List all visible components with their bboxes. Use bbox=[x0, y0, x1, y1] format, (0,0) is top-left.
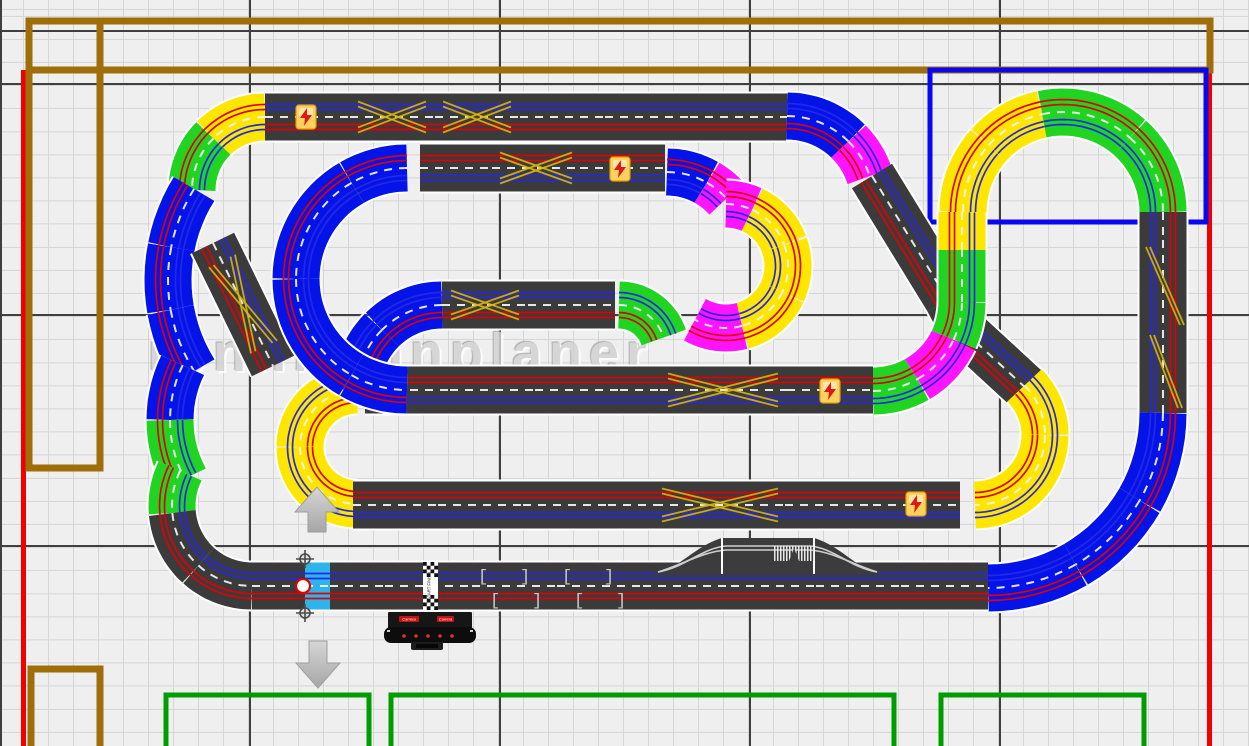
track-piece[interactable] bbox=[605, 105, 690, 130]
svg-text:Carrera: Carrera bbox=[439, 617, 453, 622]
grandstand-stripes bbox=[777, 546, 779, 561]
svg-text:Carrera: Carrera bbox=[402, 617, 416, 622]
track-piece[interactable] bbox=[620, 378, 660, 403]
svg-text:START FINISH: START FINISH bbox=[427, 572, 432, 600]
track-piece[interactable] bbox=[619, 293, 676, 342]
plan-canvas[interactable]: [][][][]START FINISHCarreraCarrera bbox=[0, 0, 1249, 746]
grandstand-stripes bbox=[798, 546, 800, 561]
border-clip-mark: [ bbox=[574, 592, 584, 611]
furniture-outline-brown-bottom-left[interactable] bbox=[31, 669, 100, 746]
track-piece[interactable] bbox=[353, 493, 438, 518]
wall-line-red-left[interactable] bbox=[21, 70, 26, 746]
table-outline-green-2[interactable] bbox=[391, 695, 894, 746]
plan-area: rennbahnplaner [][][][]START FINISHCarre… bbox=[0, 0, 1249, 746]
track-piece[interactable] bbox=[1069, 494, 1150, 575]
grandstand-stripes bbox=[810, 546, 812, 561]
track-piece[interactable] bbox=[330, 574, 385, 599]
grandstand-stripes bbox=[801, 546, 803, 561]
track-piece[interactable] bbox=[950, 212, 975, 250]
track-piece[interactable] bbox=[785, 493, 873, 518]
table-outline-green-3[interactable] bbox=[941, 695, 1144, 746]
track-piece[interactable] bbox=[689, 309, 746, 341]
track-piece[interactable] bbox=[608, 493, 655, 518]
table-outline-green-1[interactable] bbox=[166, 695, 369, 746]
move-down-arrow[interactable] bbox=[296, 641, 340, 688]
border-clip-mark: [ bbox=[490, 592, 500, 611]
track-piece[interactable] bbox=[1151, 330, 1176, 413]
led-dot bbox=[438, 634, 442, 638]
track-piece[interactable] bbox=[731, 574, 816, 599]
track-piece[interactable] bbox=[523, 493, 608, 518]
grandstand-stripes bbox=[780, 546, 782, 561]
track-piece[interactable] bbox=[643, 574, 731, 599]
track-piece[interactable] bbox=[950, 250, 975, 302]
track-piece[interactable] bbox=[159, 182, 205, 249]
bridge-overlay[interactable] bbox=[650, 538, 885, 574]
control-unit[interactable]: CarreraCarrera bbox=[384, 612, 476, 650]
track-piece[interactable] bbox=[747, 199, 796, 250]
track-piece[interactable] bbox=[535, 378, 620, 403]
selection-center-handle[interactable] bbox=[296, 579, 310, 593]
grandstand-stripes bbox=[783, 546, 785, 561]
track-piece[interactable] bbox=[911, 334, 965, 390]
border-clip-mark: [ bbox=[562, 568, 572, 587]
grandstand-stripes bbox=[804, 546, 806, 561]
power-connection-icon[interactable] bbox=[296, 105, 316, 129]
border-clip-mark: [ bbox=[478, 568, 488, 587]
track-piece[interactable] bbox=[975, 435, 1058, 518]
grandstand-stripes bbox=[807, 546, 809, 561]
border-clip-mark: ] bbox=[604, 568, 614, 587]
track-piece[interactable] bbox=[156, 245, 184, 312]
power-connection-icon[interactable] bbox=[820, 379, 840, 403]
furniture-outline-brown-left-tall[interactable] bbox=[29, 21, 100, 468]
track-piece[interactable] bbox=[158, 360, 194, 420]
start-finish-decal: START FINISH bbox=[423, 562, 438, 610]
track-piece[interactable] bbox=[284, 172, 358, 279]
furniture-outline-brown-top-band[interactable] bbox=[29, 21, 1210, 70]
led-dot bbox=[414, 634, 418, 638]
track-piece[interactable] bbox=[739, 287, 794, 338]
track-piece[interactable] bbox=[988, 554, 1082, 601]
track-piece[interactable] bbox=[345, 364, 407, 402]
track-piece[interactable] bbox=[528, 293, 615, 318]
track-piece[interactable] bbox=[284, 279, 358, 386]
power-connection-icon[interactable] bbox=[610, 157, 630, 181]
border-clip-mark: ] bbox=[520, 568, 530, 587]
grandstand-stripes bbox=[813, 546, 815, 561]
track-piece[interactable] bbox=[1122, 128, 1176, 212]
track-piece[interactable] bbox=[690, 105, 790, 130]
track-piece[interactable] bbox=[438, 493, 523, 518]
track-piece[interactable] bbox=[901, 574, 988, 599]
led-dot bbox=[450, 634, 454, 638]
border-clip-mark: ] bbox=[532, 592, 542, 611]
track-piece[interactable] bbox=[1040, 100, 1139, 148]
track-piece[interactable] bbox=[450, 378, 535, 403]
grandstand-stripes bbox=[786, 546, 788, 561]
track-piece[interactable] bbox=[420, 156, 492, 181]
track-piece[interactable] bbox=[520, 105, 605, 130]
track-piece[interactable] bbox=[1129, 413, 1176, 507]
grandstand-stripes bbox=[774, 546, 776, 561]
track-piece[interactable] bbox=[951, 137, 999, 212]
track-piece[interactable] bbox=[1151, 212, 1176, 240]
led-dot bbox=[402, 634, 406, 638]
power-connection-icon[interactable] bbox=[906, 492, 926, 516]
track-piece[interactable] bbox=[202, 238, 284, 372]
track-piece[interactable] bbox=[816, 574, 901, 599]
led-dot bbox=[426, 634, 430, 638]
border-clip-mark: ] bbox=[616, 592, 626, 611]
